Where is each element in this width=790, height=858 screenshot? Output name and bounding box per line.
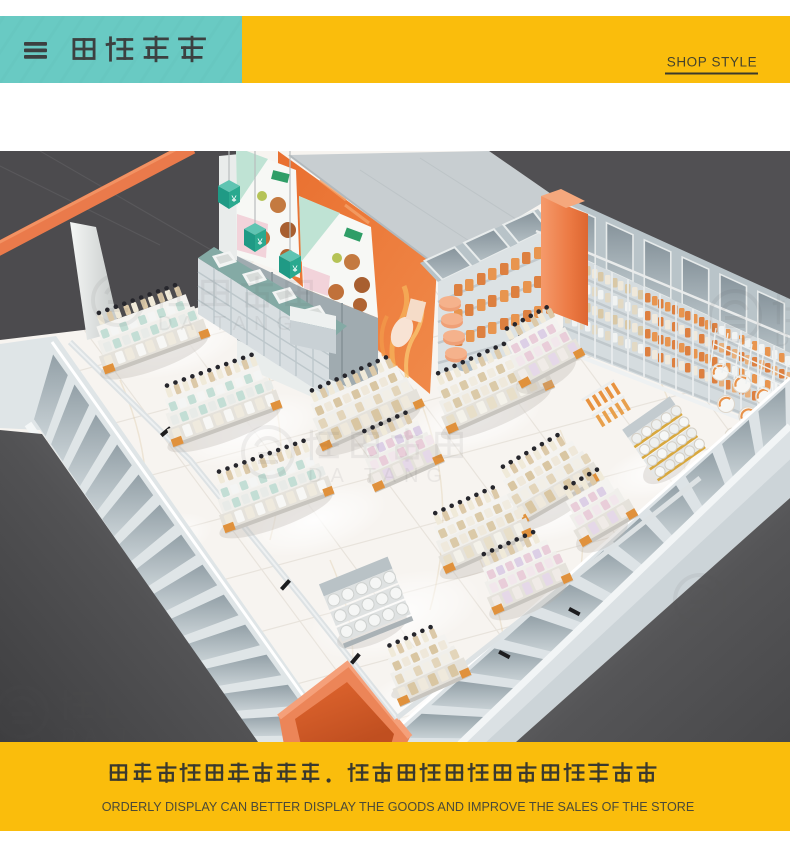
svg-text:DA TANG: DA TANG (740, 613, 790, 635)
svg-text:SHOP STYLE: SHOP STYLE (667, 55, 758, 70)
svg-text:¥: ¥ (291, 264, 298, 274)
svg-text:DA TANG: DA TANG (308, 465, 450, 487)
svg-text:¥: ¥ (256, 237, 263, 247)
svg-text:DA TANG: DA TANG (158, 313, 300, 335)
svg-text:ORDERLY DISPLAY CAN BETTER DIS: ORDERLY DISPLAY CAN BETTER DISPLAY THE G… (102, 800, 695, 814)
svg-text:¥: ¥ (230, 194, 237, 204)
svg-text:DA TANG: DA TANG (775, 329, 790, 351)
